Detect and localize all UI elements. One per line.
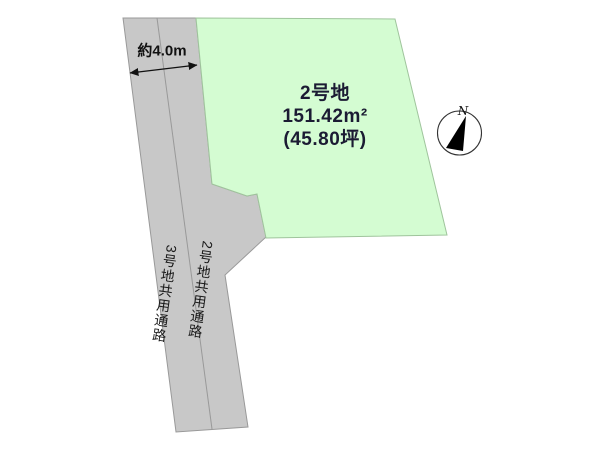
plot2-label-block: 2号地 151.42m² (45.80坪) xyxy=(282,82,367,151)
plot-name-label: 2号地 xyxy=(282,82,367,105)
site-plan-canvas: 約4.0m 2号地 151.42m² (45.80坪) 3号地共用通路 2号地共… xyxy=(0,0,600,450)
plot-area-m2-label: 151.42m² xyxy=(282,105,367,128)
site-plan-svg xyxy=(0,0,600,450)
plot-area-tsubo-label: (45.80坪) xyxy=(282,128,367,151)
width-dimension-label: 約4.0m xyxy=(137,40,186,61)
compass-north-label: N xyxy=(458,104,469,118)
